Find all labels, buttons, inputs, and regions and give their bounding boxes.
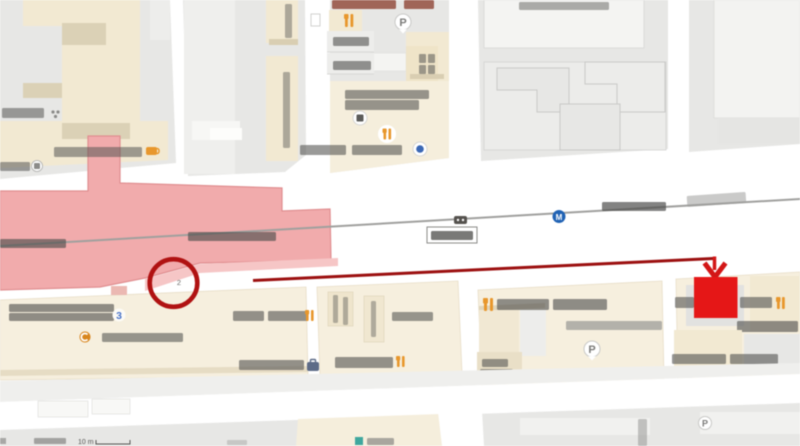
svg-text:3: 3 [116, 310, 122, 322]
svg-text:10 m: 10 m [78, 439, 94, 446]
svg-text:P: P [588, 344, 595, 356]
svg-text:2: 2 [177, 278, 181, 287]
svg-text:P: P [399, 17, 406, 29]
svg-text:M: M [556, 213, 563, 222]
svg-text:P: P [702, 419, 708, 429]
